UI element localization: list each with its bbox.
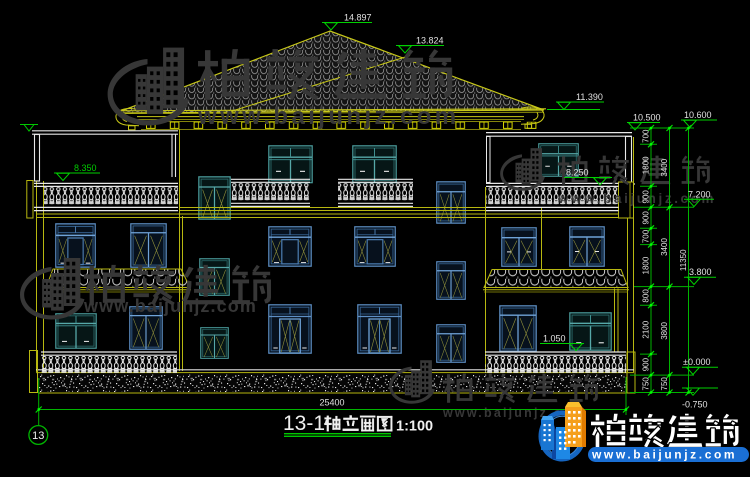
svg-text:750: 750: [660, 377, 669, 391]
svg-text:11350: 11350: [679, 249, 688, 271]
svg-text:25400: 25400: [319, 398, 344, 408]
svg-text:13-1: 13-1: [283, 412, 325, 435]
svg-text:900: 900: [642, 211, 651, 225]
svg-text:700: 700: [642, 229, 651, 243]
svg-text:±0.000: ±0.000: [683, 357, 710, 367]
svg-text:1800: 1800: [642, 256, 651, 274]
svg-text:11.390: 11.390: [576, 92, 603, 102]
svg-text:700: 700: [642, 129, 651, 143]
svg-text:900: 900: [642, 190, 651, 204]
svg-text:www.baijunjz.com: www.baijunjz.com: [197, 103, 460, 130]
svg-text:13.824: 13.824: [416, 36, 444, 46]
svg-text:8.350: 8.350: [74, 163, 97, 173]
svg-text:3.800: 3.800: [689, 267, 712, 277]
svg-text:10.600: 10.600: [684, 110, 712, 120]
svg-text:3800: 3800: [660, 321, 669, 339]
svg-text:13: 13: [32, 430, 44, 442]
svg-text:2100: 2100: [642, 320, 651, 338]
svg-text:10.500: 10.500: [633, 113, 661, 123]
svg-text:www.baijunjz.com: www.baijunjz.com: [83, 296, 257, 316]
svg-text:7.200: 7.200: [688, 189, 711, 199]
svg-text:14.897: 14.897: [344, 13, 372, 23]
svg-text:750: 750: [642, 377, 651, 391]
svg-text:8.250: 8.250: [566, 168, 589, 178]
svg-text:800: 800: [642, 289, 651, 303]
svg-text:1:100: 1:100: [396, 419, 433, 435]
svg-text:1.050: 1.050: [543, 334, 566, 344]
svg-text:www.baijunjz.com: www.baijunjz.com: [591, 448, 737, 462]
svg-text:900: 900: [642, 357, 651, 371]
svg-text:-0.750: -0.750: [682, 400, 708, 410]
svg-text:3400: 3400: [660, 158, 669, 176]
svg-text:1800: 1800: [642, 156, 651, 174]
svg-text:3400: 3400: [660, 238, 669, 256]
